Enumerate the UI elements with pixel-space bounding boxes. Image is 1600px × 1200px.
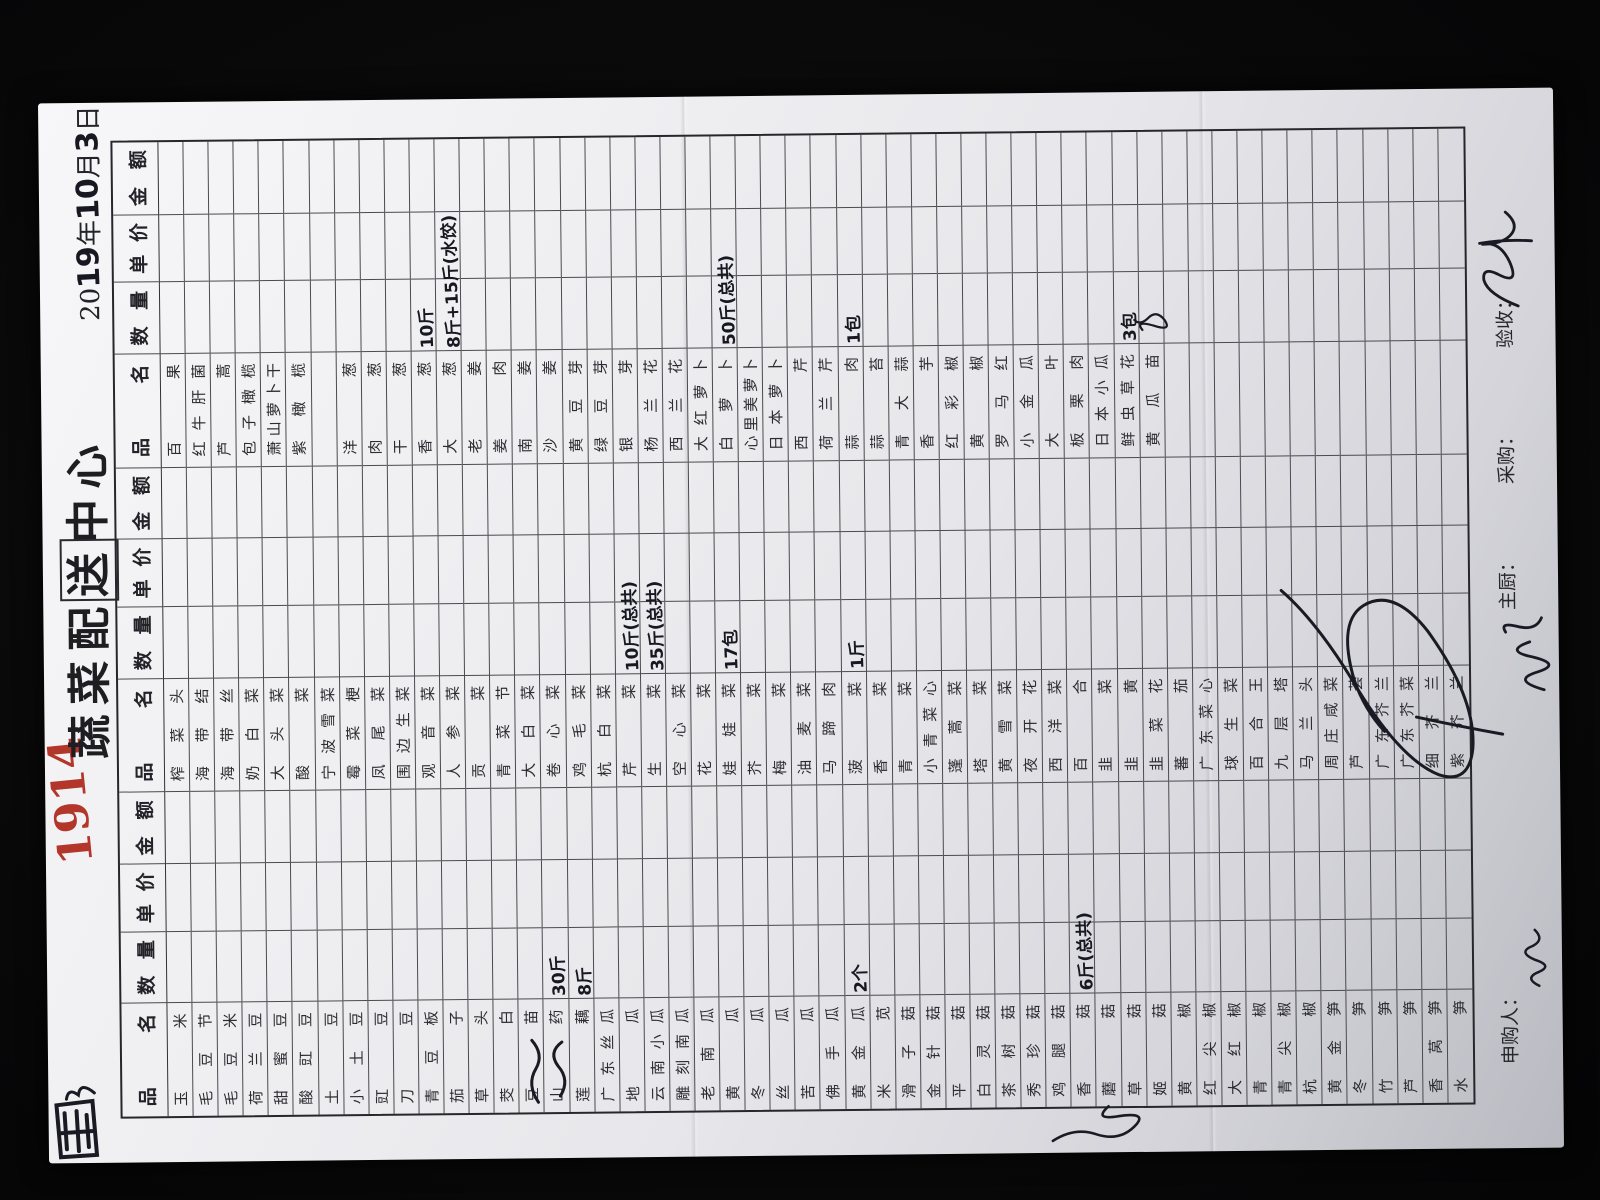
amount-cell — [1237, 131, 1262, 203]
price-cell — [1091, 529, 1116, 597]
amount-cell — [1137, 132, 1162, 204]
product-cell: 青椒 — [1246, 991, 1271, 1105]
product-cell: 小金瓜 — [1014, 344, 1039, 458]
product-cell: 豇豆 — [368, 1000, 393, 1114]
qty-cell — [1088, 272, 1113, 344]
product-cell: 凤尾菜 — [365, 676, 390, 790]
qty-cell — [339, 604, 364, 676]
amount-cell — [1043, 782, 1068, 854]
amount-cell — [1069, 782, 1094, 854]
amount-cell — [284, 141, 309, 213]
handwritten-qty: 1斤 — [842, 639, 868, 669]
qty-cell — [536, 277, 561, 349]
qty-cell — [765, 600, 790, 672]
qty-cell — [213, 605, 238, 677]
price-cell — [1019, 854, 1044, 922]
qty-cell — [235, 281, 260, 353]
price-cell — [668, 858, 693, 926]
product-cell: 老南瓜 — [694, 997, 719, 1111]
product-cell: 鲜虫草花 — [1114, 343, 1139, 457]
product-cell: 青大蒜 — [888, 345, 913, 459]
price-cell — [1421, 850, 1446, 918]
amount-cell — [1395, 778, 1420, 850]
amount-cell — [334, 140, 359, 212]
amount-cell — [234, 141, 259, 213]
product-cell: 夜开花 — [1017, 669, 1042, 783]
product-cell: 南姜 — [512, 349, 537, 463]
qty-cell — [866, 599, 891, 671]
price-cell — [410, 211, 435, 279]
product-cell: 小青菜心 — [917, 670, 942, 784]
product-cell: 黄金笋 — [1322, 990, 1347, 1104]
price-cell — [460, 210, 485, 278]
qty-cell — [386, 279, 411, 351]
qty-cell — [1346, 918, 1371, 990]
product-cell: 荷兰芹 — [813, 346, 838, 460]
qty-cell — [1339, 269, 1364, 341]
date-year-handwritten: 19 — [71, 245, 108, 288]
product-cell: 广东芥兰 — [1368, 665, 1393, 779]
price-cell — [793, 856, 818, 924]
product-cell: 梅菜 — [766, 671, 791, 785]
price-cell — [266, 862, 291, 930]
price-cell — [840, 531, 865, 599]
qty-cell — [1343, 594, 1368, 666]
qty-cell — [1067, 597, 1092, 669]
price-cell — [1088, 204, 1113, 272]
price-cell — [163, 538, 188, 606]
price-cell — [1188, 203, 1213, 271]
price-cell — [310, 212, 335, 280]
amount-cell — [291, 790, 316, 862]
product-cell: 大红萝卜 — [688, 347, 713, 461]
price-cell — [1288, 202, 1313, 270]
qty-cell — [938, 273, 963, 345]
qty-cell — [687, 276, 712, 348]
product-cell: 周庄咸菜 — [1318, 666, 1343, 780]
amount-cell — [1094, 782, 1119, 854]
qty-cell — [662, 276, 687, 348]
amount-cell — [513, 463, 538, 535]
qty-cell — [1242, 595, 1267, 667]
amount-cell — [1388, 129, 1413, 201]
price-cell — [464, 535, 489, 603]
amount-cell — [893, 784, 918, 856]
qty-cell — [260, 280, 285, 352]
price-cell — [191, 863, 216, 931]
price-cell — [1141, 528, 1166, 596]
amount-cell — [1313, 130, 1338, 202]
amount-cell — [639, 462, 664, 534]
amount-cell — [460, 139, 485, 211]
product-cell: 玉米 — [167, 1002, 192, 1116]
amount-cell — [993, 783, 1018, 855]
product-cell: 大白菜 — [515, 674, 540, 788]
product-cell: 马蹄肉 — [816, 671, 841, 785]
product-cell: 红牛肝菌 — [186, 353, 211, 467]
handwritten-qty: 50斤(总共) — [711, 255, 740, 346]
qty-cell — [1364, 269, 1389, 341]
price-cell — [815, 531, 840, 599]
qty-cell — [511, 278, 536, 350]
product-cell: 香菇 — [1071, 993, 1096, 1107]
product-cell: 鸡毛菜 — [565, 673, 590, 787]
amount-cell — [864, 459, 889, 531]
price-cell — [1242, 527, 1267, 595]
amount-cell — [240, 790, 265, 862]
qty-cell — [586, 277, 611, 349]
top-left-boxed-scribble-icon — [48, 1083, 109, 1164]
product-cell: 红尖椒 — [1196, 992, 1221, 1106]
qty-cell — [1296, 919, 1321, 991]
qty-cell — [1192, 595, 1217, 667]
product-cell: 山药 — [544, 998, 569, 1112]
qty-cell — [1214, 270, 1239, 342]
product-cell: 苦瓜 — [795, 996, 820, 1110]
product-cell: 地瓜 — [619, 998, 644, 1112]
amount-cell — [818, 784, 843, 856]
amount-cell — [1012, 133, 1037, 205]
amount-cell — [413, 464, 438, 536]
price-cell — [890, 531, 915, 599]
product-cell: 秀珍菇 — [1021, 993, 1046, 1107]
title-char: 配 — [64, 597, 116, 652]
qty-cell — [737, 275, 762, 347]
product-cell: 冬笋 — [1347, 990, 1372, 1104]
product-cell: 鸡腿菇 — [1046, 993, 1071, 1107]
qty-cell — [267, 930, 292, 1002]
header-cell-price: 单 价 — [113, 214, 159, 282]
amount-cell — [441, 788, 466, 860]
amount-cell — [1319, 779, 1344, 851]
qty-cell — [443, 928, 468, 1000]
product-cell: 黄椒 — [1171, 992, 1196, 1106]
product-cell: 姬菇 — [1146, 992, 1171, 1106]
price-cell — [586, 209, 611, 277]
price-cell — [216, 862, 241, 930]
qty-cell — [740, 600, 765, 672]
qty-cell — [188, 606, 213, 678]
qty-cell — [1393, 593, 1418, 665]
title-char: 中 — [63, 489, 115, 544]
price-cell — [1216, 527, 1241, 595]
product-cell — [1415, 340, 1440, 454]
product-cell: 刀豆 — [393, 1000, 418, 1114]
product-cell: 油麦菜 — [791, 671, 816, 785]
qty-cell — [1038, 272, 1063, 344]
price-cell — [561, 209, 586, 277]
product-cell: 酸菜 — [289, 676, 314, 790]
product-cell — [311, 351, 336, 465]
price-cell — [1012, 205, 1037, 273]
requester-signature — [1525, 930, 1545, 986]
product-cell: 芦蒿 — [211, 352, 236, 466]
qty-cell — [1117, 596, 1142, 668]
qty-cell — [913, 273, 938, 345]
amount-cell — [388, 464, 413, 536]
product-cell: 绿豆芽 — [587, 349, 612, 463]
qty-cell — [669, 925, 694, 997]
qty-cell — [819, 924, 844, 996]
product-cell: 白灵菇 — [970, 994, 995, 1108]
qty-cell — [816, 599, 841, 671]
product-cell: 米苋 — [870, 995, 895, 1109]
amount-cell — [560, 138, 585, 210]
price-cell — [869, 856, 894, 924]
qty-cell — [916, 598, 941, 670]
amount-cell — [1090, 457, 1115, 529]
product-cell: 卷心菜 — [540, 674, 565, 788]
qty-cell: 2个 — [844, 924, 869, 996]
amount-cell — [940, 458, 965, 530]
qty-cell — [1368, 593, 1393, 665]
price-cell — [718, 857, 743, 925]
qty-cell — [1221, 920, 1246, 992]
amount-cell — [266, 790, 291, 862]
price-cell — [392, 861, 417, 929]
price-cell — [1313, 202, 1338, 270]
product-cell: 黄瓜苗 — [1139, 343, 1164, 457]
product-cell: 空心菜 — [666, 672, 691, 786]
product-cell: 海带丝 — [214, 677, 239, 791]
amount-cell — [1413, 129, 1438, 201]
price-cell — [1041, 529, 1066, 597]
qty-cell — [888, 274, 913, 346]
qty-cell — [945, 922, 970, 994]
product-cell: 娃娃菜 — [716, 672, 741, 786]
qty-cell — [988, 273, 1013, 345]
qty-cell — [317, 929, 342, 1001]
amount-cell — [416, 789, 441, 861]
price-cell — [335, 212, 360, 280]
qty-cell — [941, 598, 966, 670]
qty-cell — [690, 600, 715, 672]
product-cell: 平菇 — [945, 994, 970, 1108]
amount-cell — [886, 134, 911, 206]
product-cell: 奶白菜 — [239, 677, 264, 791]
price-cell — [1263, 202, 1288, 270]
amount-cell — [1191, 456, 1216, 528]
header-cell-amount: 金 额 — [116, 467, 162, 539]
title-char: 心 — [62, 435, 114, 490]
price-cell — [1295, 851, 1320, 919]
qty-cell — [163, 606, 188, 678]
qty-cell — [769, 924, 794, 996]
price-cell — [1145, 853, 1170, 921]
qty-cell — [540, 602, 565, 674]
amount-cell — [542, 787, 567, 859]
product-cell: 青豆板 — [418, 1000, 443, 1114]
qty-cell — [1321, 919, 1346, 991]
header-cell-amount: 金 额 — [119, 791, 165, 863]
price-cell — [338, 536, 363, 604]
price-cell — [1245, 852, 1270, 920]
qty-cell — [289, 605, 314, 677]
price-cell — [589, 534, 614, 602]
qty-cell — [1063, 272, 1088, 344]
header-cell-name: 品 名 — [115, 353, 161, 467]
product-cell: 日本小瓜 — [1089, 343, 1114, 457]
header-cell-price: 单 价 — [117, 539, 163, 607]
price-cell — [1138, 203, 1163, 271]
product-cell: 滑子菇 — [895, 995, 920, 1109]
handwritten-qty: 10斤 — [411, 307, 438, 349]
qty-cell — [314, 604, 339, 676]
product-cell: 百合王 — [1243, 666, 1268, 780]
amount-cell — [1294, 779, 1319, 851]
price-cell — [363, 536, 388, 604]
amount-cell — [889, 459, 914, 531]
amount-cell — [1366, 454, 1391, 526]
product-cell — [1189, 342, 1214, 456]
price-cell — [661, 208, 686, 276]
qty-cell — [392, 928, 417, 1000]
product-cell: 包子橄榄 — [236, 352, 261, 466]
product-cell — [1390, 340, 1415, 454]
amount-cell — [642, 786, 667, 858]
price-cell — [862, 206, 887, 274]
qty-cell — [364, 604, 389, 676]
qty-cell — [310, 280, 335, 352]
amount-cell — [1269, 780, 1294, 852]
price-cell — [736, 208, 761, 276]
header-cell-qty: 数 量 — [117, 606, 163, 678]
photo-canvas: 1914 蔬菜配送中心 2019年10月3日 品 名数 量单 价金 额品 名数 … — [0, 0, 1600, 1200]
qty-cell — [389, 604, 414, 676]
amount-cell — [1244, 780, 1269, 852]
amount-cell — [1115, 457, 1140, 529]
amount-cell — [617, 787, 642, 859]
price-cell — [260, 213, 285, 281]
price-cell — [1446, 850, 1472, 918]
amount-cell — [868, 784, 893, 856]
date-month-handwritten: 10 — [70, 178, 107, 221]
amount-cell — [491, 788, 516, 860]
form-title: 蔬菜配送中心 — [51, 435, 118, 760]
amount-cell — [1037, 133, 1062, 205]
qty-cell — [1239, 270, 1264, 342]
price-cell — [317, 861, 342, 929]
product-cell: 芦笋 — [1397, 989, 1422, 1103]
price-cell — [987, 205, 1012, 273]
price-cell — [1370, 850, 1395, 918]
product-cell: 广东丝瓜 — [594, 998, 619, 1112]
amount-cell — [660, 137, 685, 209]
amount-cell — [1144, 781, 1169, 853]
inspector-label: 验收： — [1490, 291, 1518, 348]
price-cell — [1392, 525, 1417, 593]
amount-cell — [915, 459, 940, 531]
price-cell — [1317, 526, 1342, 594]
product-cell: 紫橄榄 — [286, 352, 311, 466]
product-cell: 蒜苔 — [863, 346, 888, 460]
qty-cell — [1045, 921, 1070, 993]
amount-cell — [409, 139, 434, 211]
amount-cell — [1219, 780, 1244, 852]
amount-cell — [1194, 780, 1219, 852]
amount-cell — [1162, 131, 1187, 203]
qty-cell — [565, 602, 590, 674]
qty-cell — [694, 925, 719, 997]
handwritten-qty: 2个 — [845, 964, 871, 994]
handwritten-qty: 30斤 — [544, 955, 571, 997]
product-cell: 肉葱 — [361, 351, 386, 465]
amount-cell — [911, 134, 936, 206]
amount-cell — [510, 138, 535, 210]
qty-cell: 10斤(总共) — [615, 601, 640, 673]
price-cell — [234, 213, 259, 281]
handwritten-qty: 17包 — [716, 629, 743, 671]
product-cell: 罗马红 — [989, 344, 1014, 458]
product-cell: 黄椒 — [964, 345, 989, 459]
price-cell — [514, 535, 539, 603]
price-cell — [1016, 529, 1041, 597]
product-cell: 蕃茄 — [1168, 667, 1193, 781]
product-cell: 广东芥菜 — [1394, 665, 1419, 779]
amount-cell — [1140, 456, 1165, 528]
product-cell: 茶树菇 — [995, 994, 1020, 1108]
product-cell: 蘑菇 — [1096, 993, 1121, 1107]
qty-cell — [791, 599, 816, 671]
qty-cell — [1418, 593, 1443, 665]
price-cell — [962, 205, 987, 273]
product-cell: 萧山萝卜干 — [261, 352, 286, 466]
product-cell: 水笋 — [1447, 989, 1473, 1103]
amount-cell — [366, 789, 391, 861]
amount-cell — [337, 465, 362, 537]
price-cell — [1113, 204, 1138, 272]
handwritten-qty: 1包 — [838, 315, 864, 345]
product-cell: 冬瓜 — [745, 996, 770, 1110]
qty-cell — [1167, 595, 1192, 667]
amount-cell — [463, 463, 488, 535]
price-cell — [689, 533, 714, 601]
price-cell — [209, 213, 234, 281]
amount-cell — [1438, 129, 1464, 201]
amount-cell — [287, 465, 312, 537]
handwritten-qty: 3包 — [1114, 312, 1140, 342]
price-cell — [1342, 526, 1367, 594]
price-cell — [761, 207, 786, 275]
qty-cell — [292, 929, 317, 1001]
product-cell: 心里美萝卜 — [738, 347, 763, 461]
price-cell — [991, 530, 1016, 598]
order-form-paper: 1914 蔬菜配送中心 2019年10月3日 品 名数 量单 价金 额品 名数 … — [38, 88, 1564, 1164]
product-cell: 小土豆 — [343, 1000, 368, 1114]
qty-cell — [361, 279, 386, 351]
product-cell: 观音菜 — [415, 675, 440, 789]
amount-cell — [1241, 455, 1266, 527]
product-cell: 西芹 — [788, 346, 813, 460]
product-cell: 蒜肉 — [838, 346, 863, 460]
price-cell — [643, 858, 668, 926]
amount-cell — [1112, 132, 1137, 204]
price-cell — [1417, 525, 1442, 593]
amount-cell — [1341, 454, 1366, 526]
price-cell — [887, 206, 912, 274]
qty-cell: 6斤(总共) — [1070, 921, 1095, 993]
qty-cell — [1371, 918, 1396, 990]
price-cell — [912, 206, 937, 274]
qty-cell — [618, 926, 643, 998]
price-cell — [439, 535, 464, 603]
amount-cell — [689, 461, 714, 533]
price-cell — [442, 860, 467, 928]
product-cell: 围边生菜 — [390, 675, 415, 789]
qty-cell — [1170, 920, 1195, 992]
price-cell — [818, 856, 843, 924]
amount-cell — [793, 785, 818, 857]
